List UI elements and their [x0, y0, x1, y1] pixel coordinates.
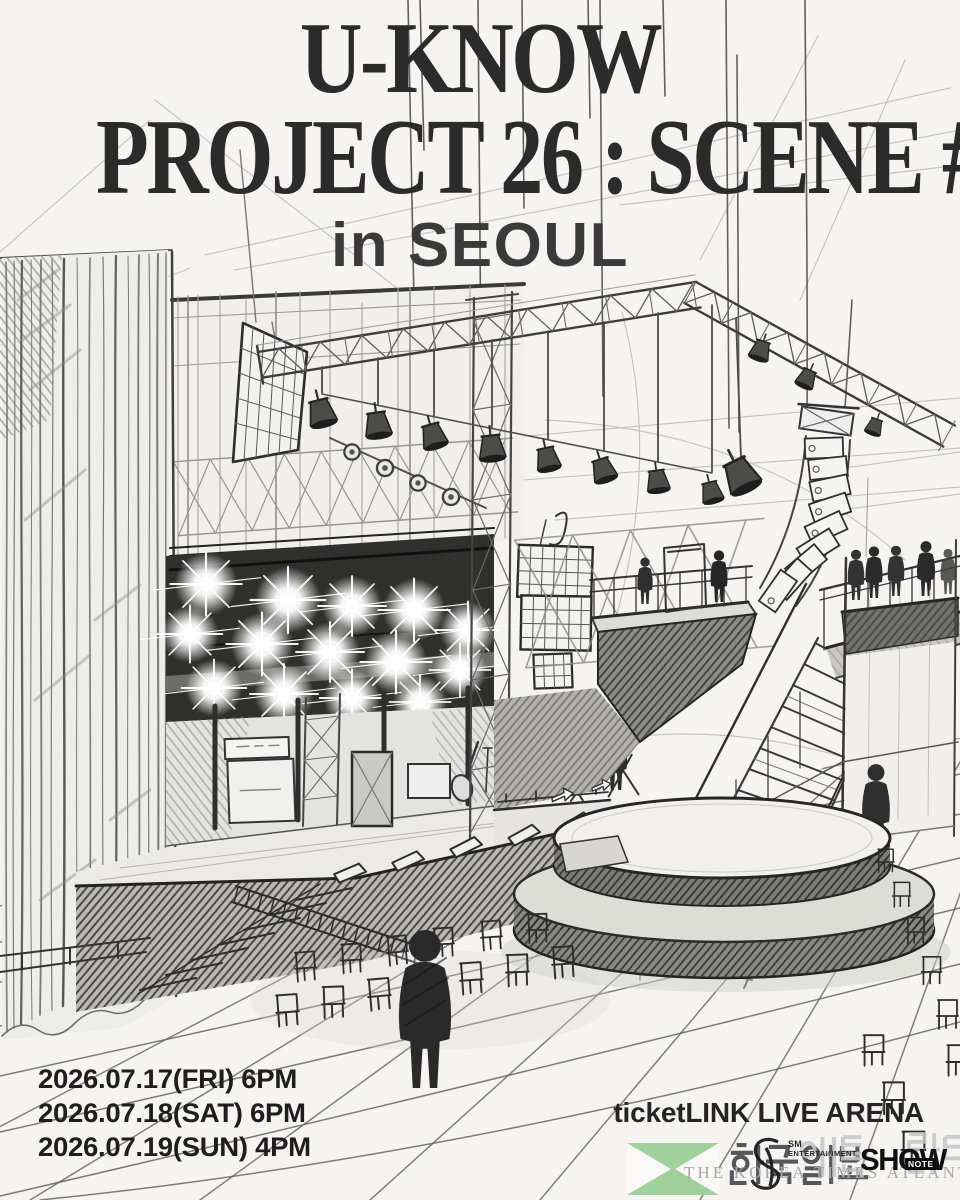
- amp-2: [408, 764, 450, 798]
- artist-title: U-KNOW: [72, 12, 888, 106]
- line-array-speaker: [759, 400, 859, 612]
- concert-poster: U-KNOW PROJECT 26 : SCENE #1 in SEOUL 20…: [0, 0, 960, 1200]
- title-block: U-KNOW PROJECT 26 : SCENE #1 in SEOUL: [0, 12, 960, 277]
- project-title: PROJECT 26 : SCENE #1: [96, 106, 864, 211]
- schedule-line: 2026.07.19(SUN) 4PM: [38, 1130, 311, 1164]
- balcony-person: [941, 549, 956, 594]
- sm-script-icon: [744, 1134, 790, 1196]
- venue-text: ticketLINK LIVE ARENA: [613, 1097, 924, 1129]
- back-wall: [172, 284, 524, 560]
- console: [352, 752, 392, 826]
- location-line: in SEOUL: [0, 215, 960, 277]
- sm-logo-text: SM ENTERTAINMENT: [788, 1140, 857, 1158]
- shownote-logo: SHOW NOTE: [860, 1142, 960, 1186]
- schedule-line: 2026.07.17(FRI) 6PM: [38, 1062, 311, 1096]
- schedule-line: 2026.07.18(SAT) 6PM: [38, 1096, 311, 1130]
- sm-sub-label: ENTERTAINMENT: [788, 1149, 857, 1158]
- schedule-block: 2026.07.17(FRI) 6PM 2026.07.18(SAT) 6PM …: [38, 1062, 311, 1164]
- amp-stack: [225, 737, 296, 823]
- sm-label: SM: [788, 1140, 857, 1149]
- stage-light-band: [141, 528, 518, 729]
- balcony-person: [917, 541, 935, 596]
- shownote-sub: NOTE: [905, 1158, 937, 1170]
